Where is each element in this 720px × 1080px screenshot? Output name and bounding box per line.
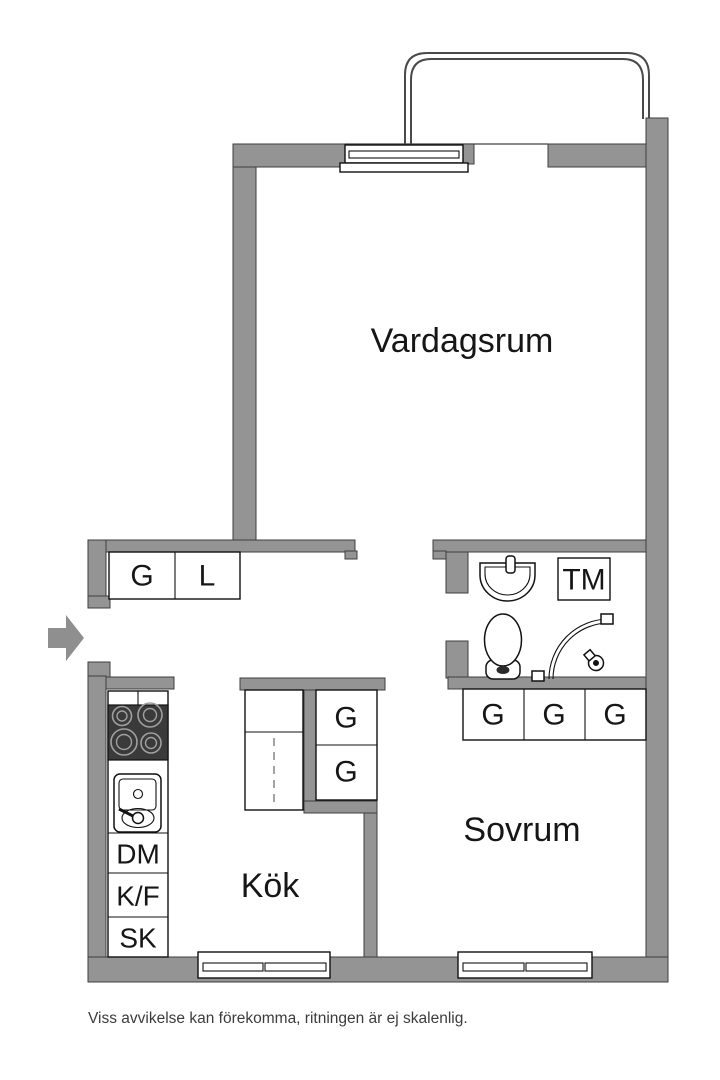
- sink-icon: [480, 556, 535, 601]
- wall-jamb-left: [345, 551, 357, 559]
- wall-left-upper-foot: [88, 596, 110, 608]
- corridor-wardrobe-top-label: G: [334, 702, 357, 735]
- floorplan-canvas: G L TM: [0, 0, 720, 1080]
- window-livingroom: [340, 145, 468, 172]
- wall-kitchen-stub: [304, 690, 316, 812]
- corridor-wardrobe-bottom-label: G: [334, 756, 357, 789]
- wall-post-window: [463, 144, 474, 164]
- fridge-freezer-label: K/F: [116, 881, 160, 912]
- wall-kitchen-top-right: [240, 678, 385, 690]
- kitchen-sink-icon: [114, 774, 161, 832]
- bedroom-wardrobe-1-label: G: [481, 699, 504, 732]
- wall-livingroom-left: [233, 144, 256, 552]
- cleaning-cupboard-label: SK: [119, 923, 157, 954]
- wall-left-upper: [88, 540, 106, 598]
- wall-left-lower: [88, 676, 106, 982]
- walls: [88, 118, 668, 982]
- wall-livingroom-top-left: [233, 144, 345, 167]
- window-kitchen: [198, 952, 330, 978]
- wall-kitchen-bedroom-h: [304, 801, 377, 813]
- kitchen-tall-cabinet: [245, 690, 303, 810]
- wall-hall-top-right: [433, 540, 646, 552]
- hall-wardrobe-label: G: [130, 560, 153, 593]
- hall-linen-label: L: [199, 560, 216, 593]
- disclaimer-text: Viss avvikelse kan förekomma, ritningen …: [88, 1010, 468, 1027]
- bedroom-wardrobes: G G G: [463, 689, 646, 740]
- balcony-railing-icon: [405, 53, 649, 145]
- wall-bath-left-upper: [446, 552, 468, 593]
- bathroom: TM: [480, 556, 613, 681]
- kitchen-counter: DM K/F SK: [108, 691, 168, 957]
- window-bedroom: [458, 952, 592, 978]
- wall-kitchen-bedroom-v: [364, 813, 377, 957]
- bedroom-wardrobe-2-label: G: [542, 699, 565, 732]
- washing-machine-label: TM: [562, 564, 605, 597]
- kitchen-label: Kök: [241, 867, 301, 905]
- floorplan: G L TM: [0, 0, 720, 1080]
- wall-bath-bottom: [448, 677, 646, 689]
- bedroom-wardrobe-3-label: G: [603, 699, 626, 732]
- shower-icon: [532, 614, 613, 681]
- corridor-wardrobes: G G: [316, 690, 377, 800]
- wall-bath-left-lower: [446, 641, 468, 678]
- dishwasher-label: DM: [116, 839, 160, 870]
- living-room-label: Vardagsrum: [371, 322, 554, 360]
- wall-jamb-right: [433, 551, 446, 559]
- stove-icon: [108, 703, 168, 760]
- wall-right: [646, 118, 668, 982]
- wall-kitchen-top-left: [106, 677, 174, 689]
- entry-arrow-icon: [48, 615, 84, 661]
- hall-closets: G L: [109, 552, 240, 599]
- wall-livingroom-top-right: [548, 144, 646, 167]
- toilet-icon: [485, 614, 522, 679]
- bedroom-label: Sovrum: [463, 811, 580, 849]
- wall-hall-top-left: [88, 540, 355, 552]
